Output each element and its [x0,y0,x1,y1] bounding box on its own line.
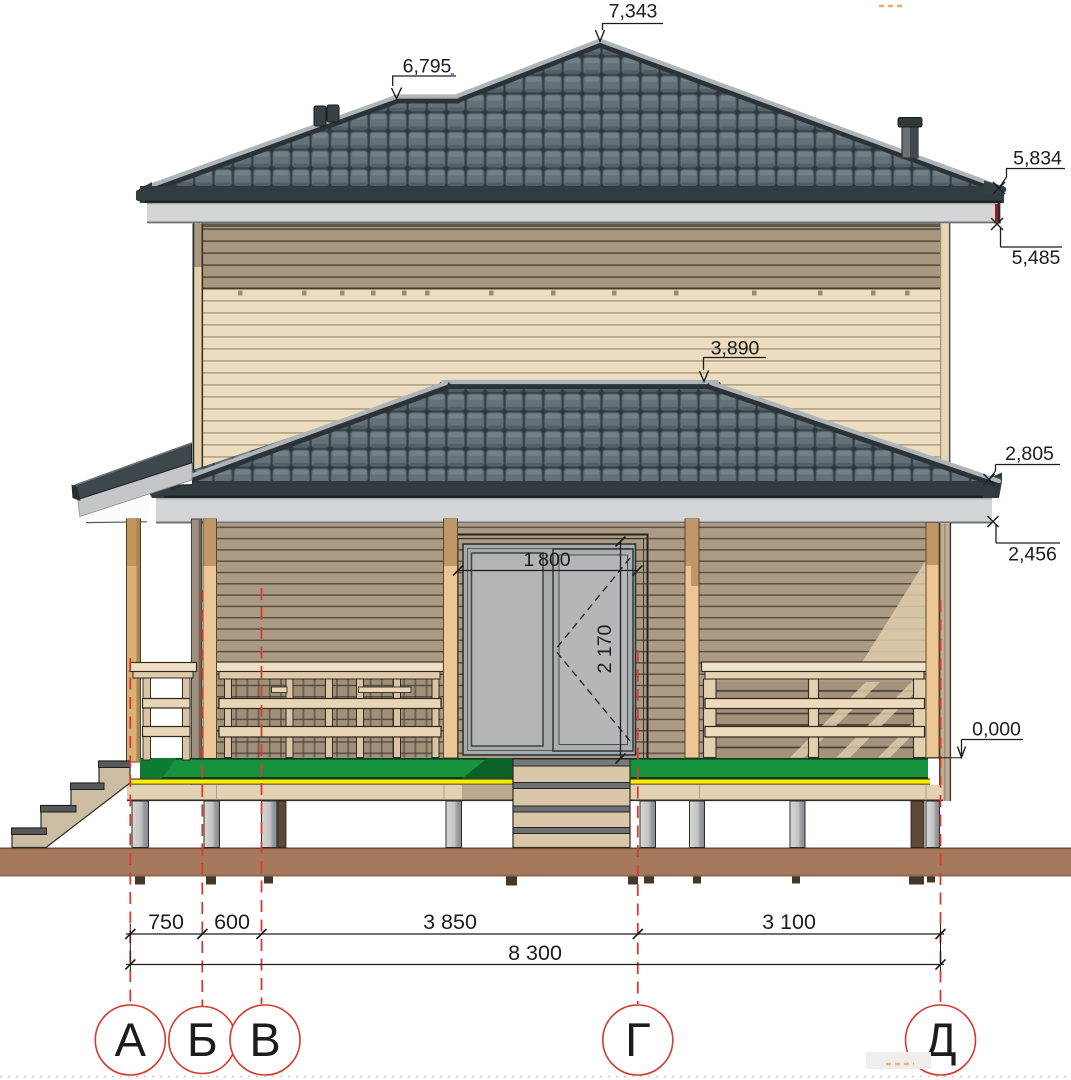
svg-text:2,456: 2,456 [1008,544,1057,566]
svg-text:5,834: 5,834 [1013,148,1062,170]
svg-text:7,343: 7,343 [609,1,658,23]
svg-text:0,000: 0,000 [972,719,1021,741]
svg-text:3 850: 3 850 [423,910,477,934]
svg-text:8 300: 8 300 [508,941,562,965]
svg-text:600: 600 [214,910,250,934]
svg-text:1 800: 1 800 [523,549,570,571]
svg-text:3 100: 3 100 [762,910,816,934]
svg-text:2 170: 2 170 [594,624,616,673]
svg-text:2,805: 2,805 [1005,443,1054,465]
svg-text:6,795: 6,795 [403,56,452,78]
svg-text:5,485: 5,485 [1012,247,1061,269]
svg-text:Б: Б [187,1013,218,1066]
svg-text:В: В [249,1013,280,1066]
svg-text:750: 750 [148,910,184,934]
svg-text:Г: Г [625,1013,650,1066]
svg-text:А: А [115,1013,147,1066]
svg-text:3,890: 3,890 [711,338,760,360]
